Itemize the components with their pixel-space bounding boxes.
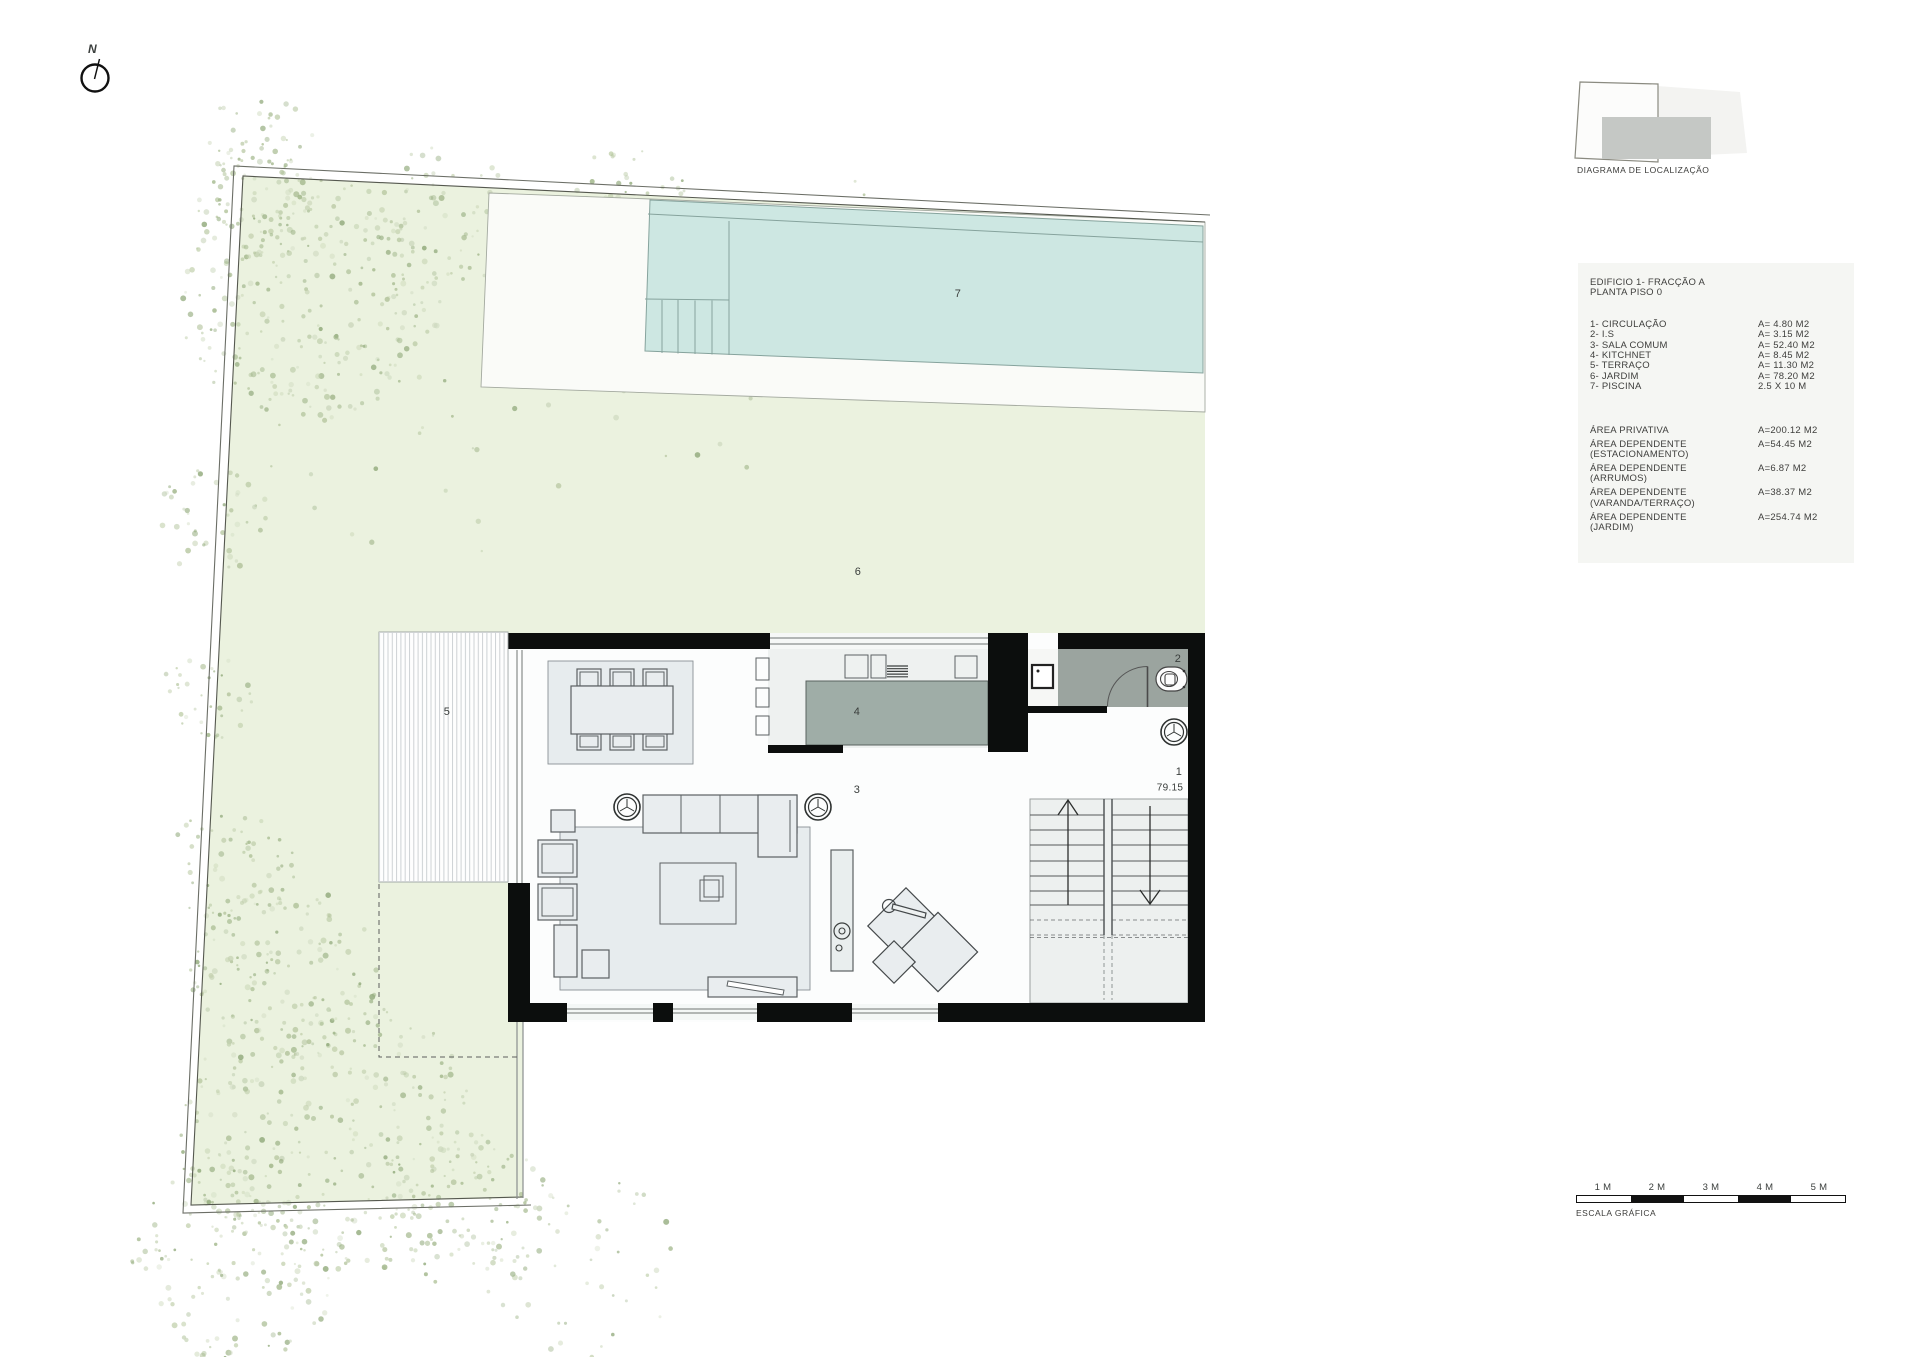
terrace-label: 5: [444, 706, 450, 718]
legend-panel: EDIFICIO 1- FRACÇÃO A PLANTA PISO 0 1- C…: [1578, 263, 1854, 563]
legend-areas: ÁREA PRIVATIVAA=200.12 M2ÁREA DEPENDENTE…: [1590, 426, 1844, 534]
north-label: N: [88, 42, 97, 56]
living-label: 3: [854, 784, 860, 796]
circulation-label: 1: [1176, 766, 1182, 778]
scale-label: 5 M: [1792, 1182, 1846, 1193]
scale-label: 4 M: [1738, 1182, 1792, 1193]
floor-plan-sheet: 7 6 5 4 3 2 1 79.15 N DIAGRAMA DE LOCALI…: [0, 0, 1920, 1357]
scale-segment: [1577, 1196, 1631, 1202]
scale-bar-caption: ESCALA GRÁFICA: [1576, 1208, 1846, 1218]
utility-niche: [1028, 649, 1058, 707]
floor-level: 79.15: [1157, 783, 1184, 794]
kitchen-window: [770, 633, 988, 649]
location-highlight: [1602, 117, 1711, 159]
legend-row: ÁREA DEPENDENTE(JARDIM)A=254.74 M2: [1590, 513, 1844, 534]
legend-row: ÁREA DEPENDENTE(VARANDA/TERRAÇO)A=38.37 …: [1590, 488, 1844, 509]
scale-segment: [1738, 1196, 1792, 1202]
scale-segment: [1791, 1196, 1845, 1202]
legend-row: ÁREA DEPENDENTE(ESTACIONAMENTO)A=54.45 M…: [1590, 440, 1844, 461]
legend-row: 7- PISCINA2.5 X 10 M: [1590, 382, 1844, 392]
scale-bar: 1 M2 M3 M4 M5 M ESCALA GRÁFICA: [1576, 1182, 1846, 1218]
house: [508, 633, 1205, 1022]
scale-segment: [1631, 1196, 1685, 1202]
scale-bar-segments: [1576, 1195, 1846, 1203]
ceiling-lamp-icon: [1161, 719, 1187, 745]
scale-segment: [1684, 1196, 1738, 1202]
floor-plan-drawing: [0, 0, 1920, 1357]
toilet: [1156, 667, 1187, 691]
dining-area: [548, 661, 693, 764]
kitchen-label: 4: [854, 706, 860, 718]
legend-items: 1- CIRCULAÇÃOA= 4.80 M22- I.SA= 3.15 M23…: [1590, 320, 1844, 393]
terrace-deck: [379, 632, 508, 882]
bathroom-label: 2: [1175, 653, 1181, 665]
window: [567, 1004, 938, 1020]
ceiling-lamp-icon: [805, 794, 831, 820]
fireplace-panel: [831, 850, 853, 971]
location-diagram-caption: DIAGRAMA DE LOCALIZAÇÃO: [1577, 165, 1709, 175]
garden-label: 6: [855, 566, 861, 578]
scale-label: 3 M: [1684, 1182, 1738, 1193]
legend-row: ÁREA PRIVATIVAA=200.12 M2: [1590, 426, 1844, 436]
legend-row: ÁREA DEPENDENTE(ARRUMOS)A=6.87 M2: [1590, 464, 1844, 485]
ceiling-lamp-icon: [614, 794, 640, 820]
scale-bar-labels: 1 M2 M3 M4 M5 M: [1576, 1182, 1846, 1193]
scale-label: 2 M: [1630, 1182, 1684, 1193]
pool: [645, 200, 1203, 373]
scale-label: 1 M: [1576, 1182, 1630, 1193]
staircase: [1030, 799, 1188, 1003]
location-diagram: [1575, 82, 1747, 162]
tv-bench: [708, 977, 797, 997]
legend-title-line2: PLANTA PISO 0: [1590, 288, 1844, 298]
kitchen-island: [806, 681, 988, 745]
dining-table: [571, 686, 673, 734]
pool-label: 7: [955, 288, 961, 300]
north-arrow-icon: [82, 59, 109, 92]
